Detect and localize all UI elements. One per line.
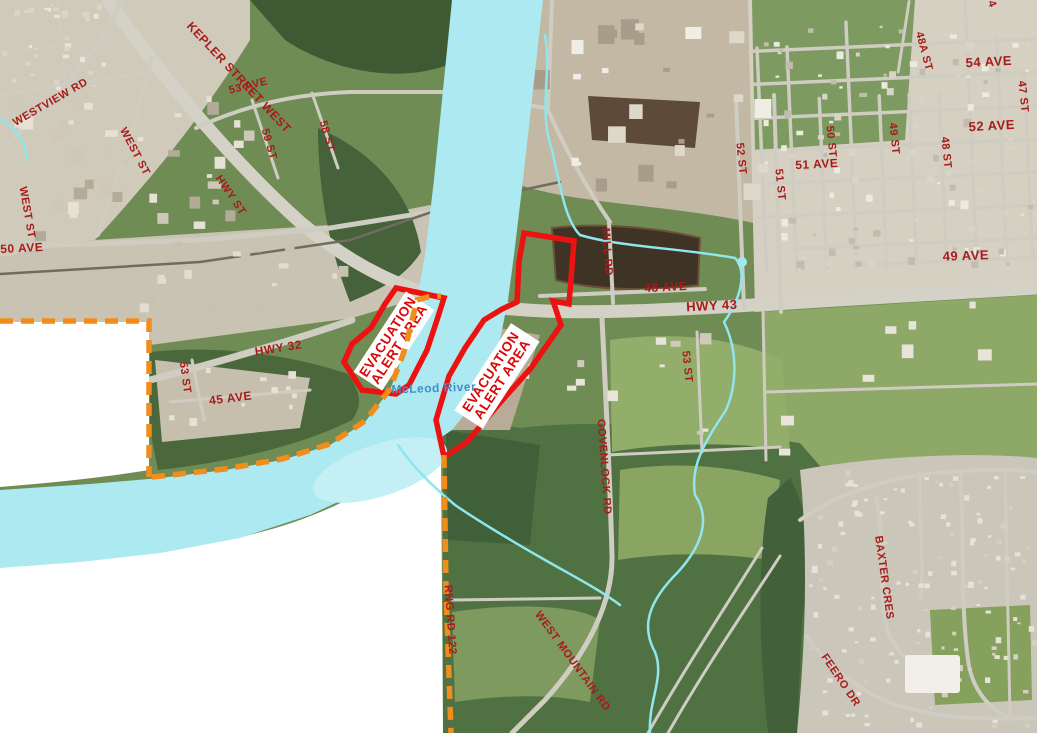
- river-label-mcleod-river: McLeod River: [391, 380, 476, 397]
- building: [734, 94, 743, 102]
- building: [656, 337, 666, 344]
- building: [1020, 476, 1025, 479]
- building: [950, 185, 956, 191]
- building: [607, 390, 618, 401]
- building: [35, 48, 38, 50]
- building: [206, 96, 211, 102]
- building: [781, 219, 788, 226]
- building: [244, 131, 255, 141]
- building: [608, 126, 626, 142]
- building: [112, 192, 122, 202]
- road-label-hwy-43: HWY 43: [686, 297, 738, 315]
- building: [779, 49, 782, 53]
- building: [941, 514, 946, 519]
- building: [189, 418, 197, 426]
- building: [12, 78, 16, 82]
- building: [884, 74, 887, 77]
- building: [873, 230, 881, 236]
- building: [996, 556, 1001, 561]
- building: [1008, 146, 1014, 149]
- building: [832, 547, 837, 553]
- building: [885, 326, 896, 334]
- building: [834, 595, 839, 599]
- building: [44, 8, 48, 10]
- building: [140, 303, 149, 312]
- building: [995, 68, 1000, 72]
- building: [206, 368, 211, 373]
- building: [54, 80, 59, 85]
- building: [208, 304, 216, 313]
- building: [574, 162, 581, 166]
- building: [149, 306, 155, 310]
- building: [1008, 252, 1012, 254]
- building: [905, 155, 909, 159]
- building: [576, 379, 585, 386]
- building: [910, 61, 917, 67]
- building: [925, 477, 929, 480]
- building: [207, 174, 212, 178]
- building: [85, 180, 94, 189]
- building: [918, 583, 924, 587]
- building: [776, 76, 780, 78]
- building: [886, 679, 890, 683]
- building: [864, 499, 868, 502]
- building: [149, 194, 157, 203]
- building: [238, 265, 243, 270]
- building: [925, 583, 930, 588]
- building: [73, 103, 85, 111]
- building: [1026, 724, 1030, 728]
- building: [52, 132, 63, 142]
- building: [1032, 640, 1037, 646]
- building: [1027, 547, 1031, 549]
- building: [994, 655, 999, 659]
- building: [51, 4, 54, 6]
- building: [949, 483, 953, 487]
- building: [764, 42, 769, 46]
- building: [951, 571, 957, 575]
- building: [729, 31, 744, 43]
- building: [11, 101, 20, 106]
- building: [999, 249, 1004, 255]
- building: [845, 483, 848, 487]
- building: [978, 349, 992, 360]
- building: [987, 486, 991, 489]
- building: [1005, 526, 1008, 528]
- building: [853, 246, 859, 249]
- building: [887, 88, 894, 95]
- building: [101, 183, 112, 195]
- building: [660, 364, 665, 367]
- building: [863, 375, 875, 382]
- building: [859, 659, 864, 664]
- building: [781, 145, 787, 151]
- building: [946, 522, 950, 526]
- building: [864, 723, 870, 726]
- building: [954, 648, 958, 651]
- building: [54, 15, 60, 18]
- building: [53, 199, 63, 209]
- building: [675, 145, 685, 156]
- building: [102, 62, 106, 66]
- building: [901, 489, 905, 493]
- building: [777, 150, 781, 153]
- building: [855, 261, 861, 266]
- building: [851, 504, 856, 507]
- building: [854, 257, 857, 260]
- building: [1009, 506, 1013, 509]
- building: [827, 678, 833, 682]
- building: [62, 10, 68, 17]
- building: [754, 99, 771, 118]
- building: [953, 476, 958, 480]
- building: [848, 627, 853, 631]
- building: [2, 51, 7, 56]
- building: [638, 165, 653, 182]
- building: [905, 655, 960, 693]
- building: [943, 33, 946, 35]
- building: [916, 642, 920, 645]
- building: [935, 481, 938, 484]
- building: [788, 218, 796, 224]
- building: [831, 80, 837, 85]
- building: [286, 386, 291, 390]
- building: [827, 560, 833, 565]
- building: [927, 174, 934, 182]
- building: [121, 159, 128, 163]
- building: [822, 690, 827, 693]
- building: [168, 150, 180, 157]
- building: [1013, 654, 1018, 659]
- building: [978, 518, 983, 524]
- building: [842, 649, 847, 652]
- building: [30, 74, 35, 77]
- building: [969, 161, 972, 163]
- building: [970, 541, 974, 546]
- building: [996, 637, 1002, 643]
- building: [1015, 553, 1021, 557]
- building: [1011, 568, 1016, 570]
- building: [924, 609, 928, 611]
- building: [996, 541, 1001, 544]
- building: [788, 156, 793, 159]
- building: [826, 262, 830, 265]
- building: [1021, 214, 1024, 216]
- building: [984, 587, 987, 589]
- building: [910, 718, 914, 722]
- building: [839, 86, 842, 88]
- building: [818, 74, 822, 76]
- building: [970, 538, 976, 541]
- building: [953, 59, 959, 65]
- building: [234, 141, 244, 148]
- building: [880, 26, 883, 28]
- building: [74, 188, 87, 200]
- building: [909, 523, 914, 527]
- building: [950, 533, 954, 537]
- building: [289, 405, 293, 409]
- building: [829, 121, 833, 123]
- building: [854, 228, 858, 231]
- road-label-50-ave: 50 AVE: [0, 240, 44, 256]
- building: [914, 219, 918, 223]
- building: [816, 648, 820, 650]
- building: [94, 14, 99, 19]
- building: [836, 207, 841, 211]
- building: [666, 181, 676, 188]
- building: [256, 305, 266, 311]
- building: [822, 711, 827, 716]
- building: [830, 193, 834, 198]
- building: [68, 202, 79, 214]
- building: [166, 259, 171, 262]
- building: [169, 415, 174, 420]
- building: [969, 302, 975, 309]
- building: [977, 513, 981, 516]
- building: [988, 535, 991, 537]
- building: [818, 516, 824, 520]
- building: [779, 449, 790, 456]
- building: [288, 371, 296, 379]
- building: [571, 40, 583, 54]
- building: [1008, 138, 1013, 141]
- building: [985, 677, 990, 683]
- building: [823, 587, 827, 590]
- building: [1013, 617, 1017, 621]
- building: [966, 76, 970, 78]
- building: [629, 104, 642, 119]
- building: [980, 190, 985, 193]
- building: [916, 723, 922, 728]
- building: [796, 131, 803, 136]
- building: [64, 47, 69, 51]
- evacuation-alert-map: EVACUATIONALERT AREAEVACUATIONALERT AREA…: [0, 0, 1037, 733]
- building: [1021, 595, 1026, 600]
- building: [703, 428, 709, 431]
- building: [602, 68, 609, 73]
- building: [939, 557, 942, 559]
- building: [913, 570, 918, 573]
- building: [234, 120, 240, 127]
- building: [744, 183, 761, 200]
- building: [1022, 559, 1026, 562]
- building: [818, 135, 824, 139]
- building: [919, 99, 923, 102]
- building: [215, 157, 226, 169]
- building: [678, 139, 684, 144]
- building: [194, 222, 206, 229]
- building: [940, 483, 943, 487]
- building: [1029, 626, 1034, 632]
- building: [184, 270, 192, 279]
- building: [865, 715, 869, 718]
- building: [941, 646, 944, 649]
- building: [950, 34, 957, 38]
- building: [83, 12, 90, 17]
- building: [65, 37, 69, 39]
- building: [28, 7, 35, 13]
- building: [241, 253, 250, 261]
- building: [840, 532, 845, 535]
- building: [846, 714, 850, 717]
- building: [71, 149, 85, 164]
- building: [933, 155, 939, 161]
- building: [848, 480, 853, 486]
- building: [897, 582, 901, 585]
- building: [925, 632, 930, 638]
- building: [949, 200, 955, 206]
- building: [260, 377, 267, 381]
- building: [917, 629, 920, 632]
- building: [1004, 211, 1009, 215]
- building: [157, 213, 168, 224]
- building: [1028, 205, 1033, 209]
- building: [706, 114, 714, 118]
- building: [70, 213, 78, 218]
- building: [105, 151, 110, 154]
- building: [272, 283, 277, 286]
- building: [909, 150, 916, 156]
- building: [822, 94, 827, 100]
- building: [966, 41, 974, 49]
- building: [175, 242, 182, 246]
- building: [809, 584, 812, 586]
- building: [986, 611, 991, 614]
- building: [871, 597, 874, 600]
- building: [928, 571, 932, 575]
- building: [781, 416, 794, 426]
- building: [894, 488, 897, 490]
- road-label-52-ave: 52 AVE: [968, 117, 1015, 134]
- building: [781, 233, 787, 240]
- building: [889, 71, 896, 78]
- building: [785, 62, 792, 69]
- building: [902, 344, 914, 358]
- building: [808, 28, 814, 32]
- building: [946, 170, 952, 176]
- building: [596, 179, 607, 192]
- building: [207, 102, 219, 115]
- building: [292, 393, 297, 398]
- building: [899, 29, 903, 33]
- building: [58, 122, 68, 131]
- building: [573, 74, 581, 80]
- building: [190, 197, 201, 209]
- building: [856, 52, 860, 56]
- building: [984, 554, 988, 556]
- building: [993, 720, 998, 723]
- building: [29, 45, 32, 48]
- building: [914, 123, 919, 128]
- building: [1004, 656, 1008, 660]
- building: [992, 646, 997, 650]
- building: [968, 226, 975, 232]
- building: [332, 273, 337, 278]
- building: [25, 62, 31, 66]
- building: [906, 583, 909, 586]
- building: [1025, 70, 1029, 72]
- building: [85, 17, 90, 22]
- building: [84, 103, 93, 110]
- building: [80, 57, 85, 62]
- building: [880, 511, 885, 514]
- building: [837, 51, 844, 59]
- building: [866, 195, 873, 202]
- building: [845, 471, 850, 477]
- building: [838, 521, 843, 526]
- building: [809, 647, 812, 649]
- building: [848, 148, 855, 156]
- building: [855, 511, 860, 517]
- building: [105, 130, 118, 137]
- building: [909, 321, 916, 329]
- building: [968, 668, 972, 671]
- building: [233, 251, 241, 256]
- building: [929, 706, 933, 709]
- building: [148, 298, 158, 305]
- building: [796, 261, 804, 268]
- building: [35, 54, 39, 58]
- building: [834, 114, 841, 121]
- building: [964, 495, 969, 500]
- building: [801, 256, 806, 259]
- building: [882, 82, 888, 89]
- building: [968, 104, 974, 111]
- building: [992, 653, 995, 656]
- building: [859, 93, 867, 97]
- building: [279, 263, 289, 268]
- building: [671, 341, 681, 347]
- road-label-51-ave: 51 AVE: [795, 156, 839, 172]
- building: [1017, 622, 1020, 624]
- building: [813, 612, 818, 617]
- building: [853, 484, 858, 487]
- building: [982, 92, 989, 97]
- building: [978, 580, 982, 583]
- building: [92, 85, 95, 87]
- building: [886, 45, 890, 48]
- building: [53, 8, 59, 11]
- building: [984, 80, 988, 84]
- building: [951, 606, 956, 610]
- building: [339, 266, 349, 277]
- building: [818, 544, 822, 549]
- building: [813, 233, 816, 235]
- road-label-54-ave: 54 AVE: [965, 53, 1012, 70]
- building: [1004, 556, 1010, 562]
- building: [909, 239, 913, 241]
- building: [855, 641, 859, 643]
- building: [685, 27, 701, 39]
- building: [868, 260, 875, 268]
- map-image: EVACUATIONALERT AREAEVACUATIONALERT AREA…: [0, 0, 1037, 733]
- building: [956, 74, 959, 76]
- building: [68, 120, 73, 124]
- building: [937, 182, 940, 184]
- building: [213, 246, 217, 250]
- building: [254, 246, 260, 253]
- building: [1013, 43, 1019, 48]
- building: [784, 110, 791, 118]
- building: [992, 725, 997, 729]
- building: [870, 638, 876, 642]
- building: [48, 8, 52, 12]
- building: [225, 210, 235, 221]
- building: [765, 162, 768, 164]
- building: [1006, 263, 1010, 266]
- building: [97, 5, 102, 11]
- building: [851, 713, 855, 716]
